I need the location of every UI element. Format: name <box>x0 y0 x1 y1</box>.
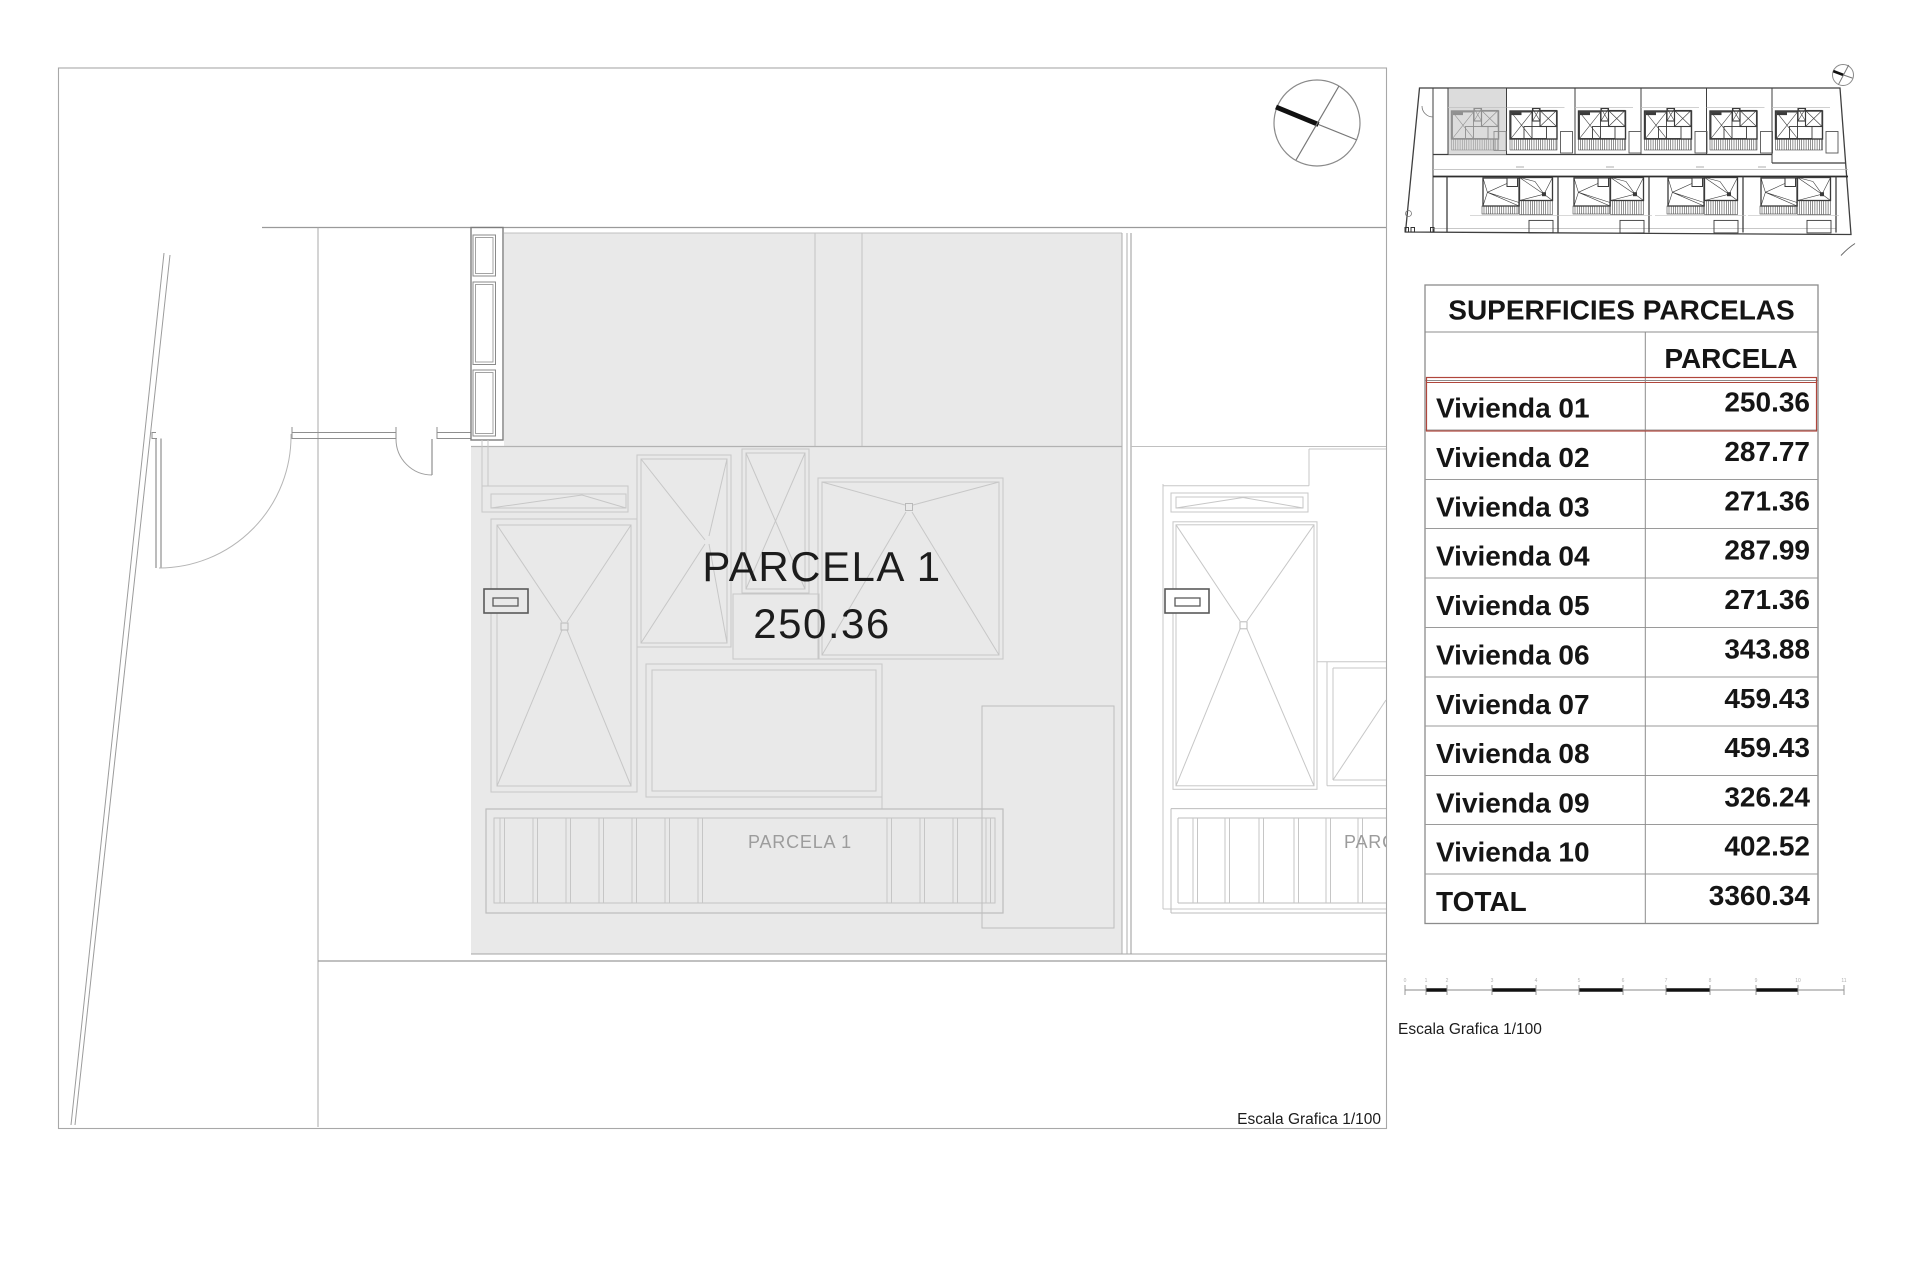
svg-text:459.43: 459.43 <box>1724 732 1810 763</box>
svg-text:3: 3 <box>1491 978 1494 984</box>
svg-text:459.43: 459.43 <box>1724 683 1810 714</box>
svg-text:9: 9 <box>1755 978 1758 984</box>
svg-text:Vivienda 02: Vivienda 02 <box>1436 442 1590 473</box>
svg-text:0: 0 <box>1404 978 1407 984</box>
svg-text:Vivienda 03: Vivienda 03 <box>1436 492 1590 523</box>
svg-text:Vivienda 04: Vivienda 04 <box>1436 541 1590 572</box>
svg-text:271.36: 271.36 <box>1724 486 1810 517</box>
svg-text:8: 8 <box>1709 978 1712 984</box>
svg-text:Vivienda 08: Vivienda 08 <box>1436 738 1590 769</box>
svg-text:1: 1 <box>1425 978 1428 984</box>
svg-text:Vivienda 09: Vivienda 09 <box>1436 788 1590 819</box>
svg-text:PARCELA: PARCELA <box>1664 343 1797 374</box>
svg-text:271.36: 271.36 <box>1724 584 1810 615</box>
svg-text:PARCELA 1: PARCELA 1 <box>702 543 941 590</box>
svg-text:287.77: 287.77 <box>1724 436 1810 467</box>
svg-text:TOTAL: TOTAL <box>1436 886 1527 917</box>
svg-text:Vivienda 10: Vivienda 10 <box>1436 837 1590 868</box>
svg-text:6: 6 <box>1622 978 1625 984</box>
svg-text:10: 10 <box>1795 978 1801 984</box>
svg-text:Vivienda 05: Vivienda 05 <box>1436 590 1590 621</box>
svg-text:7: 7 <box>1665 978 1668 984</box>
svg-text:11: 11 <box>1841 978 1846 984</box>
svg-text:3360.34: 3360.34 <box>1709 880 1811 911</box>
svg-text:2: 2 <box>1446 978 1449 984</box>
svg-text:287.99: 287.99 <box>1724 535 1810 566</box>
svg-text:Escala Grafica 1/100: Escala Grafica 1/100 <box>1398 1021 1542 1038</box>
svg-text:5: 5 <box>1578 978 1581 984</box>
svg-text:4: 4 <box>1535 978 1538 984</box>
svg-text:SUPERFICIES PARCELAS: SUPERFICIES PARCELAS <box>1448 295 1794 326</box>
svg-text:Vivienda 01: Vivienda 01 <box>1436 393 1590 424</box>
svg-text:326.24: 326.24 <box>1724 782 1810 813</box>
svg-text:Escala Grafica 1/100: Escala Grafica 1/100 <box>1237 1111 1381 1128</box>
svg-text:250.36: 250.36 <box>753 600 890 647</box>
svg-text:402.52: 402.52 <box>1724 831 1810 862</box>
svg-text:343.88: 343.88 <box>1724 634 1810 665</box>
svg-text:Vivienda 06: Vivienda 06 <box>1436 640 1590 671</box>
svg-text:250.36: 250.36 <box>1724 387 1810 418</box>
svg-text:Vivienda 07: Vivienda 07 <box>1436 689 1590 720</box>
svg-text:PARCELA 1: PARCELA 1 <box>748 832 852 852</box>
